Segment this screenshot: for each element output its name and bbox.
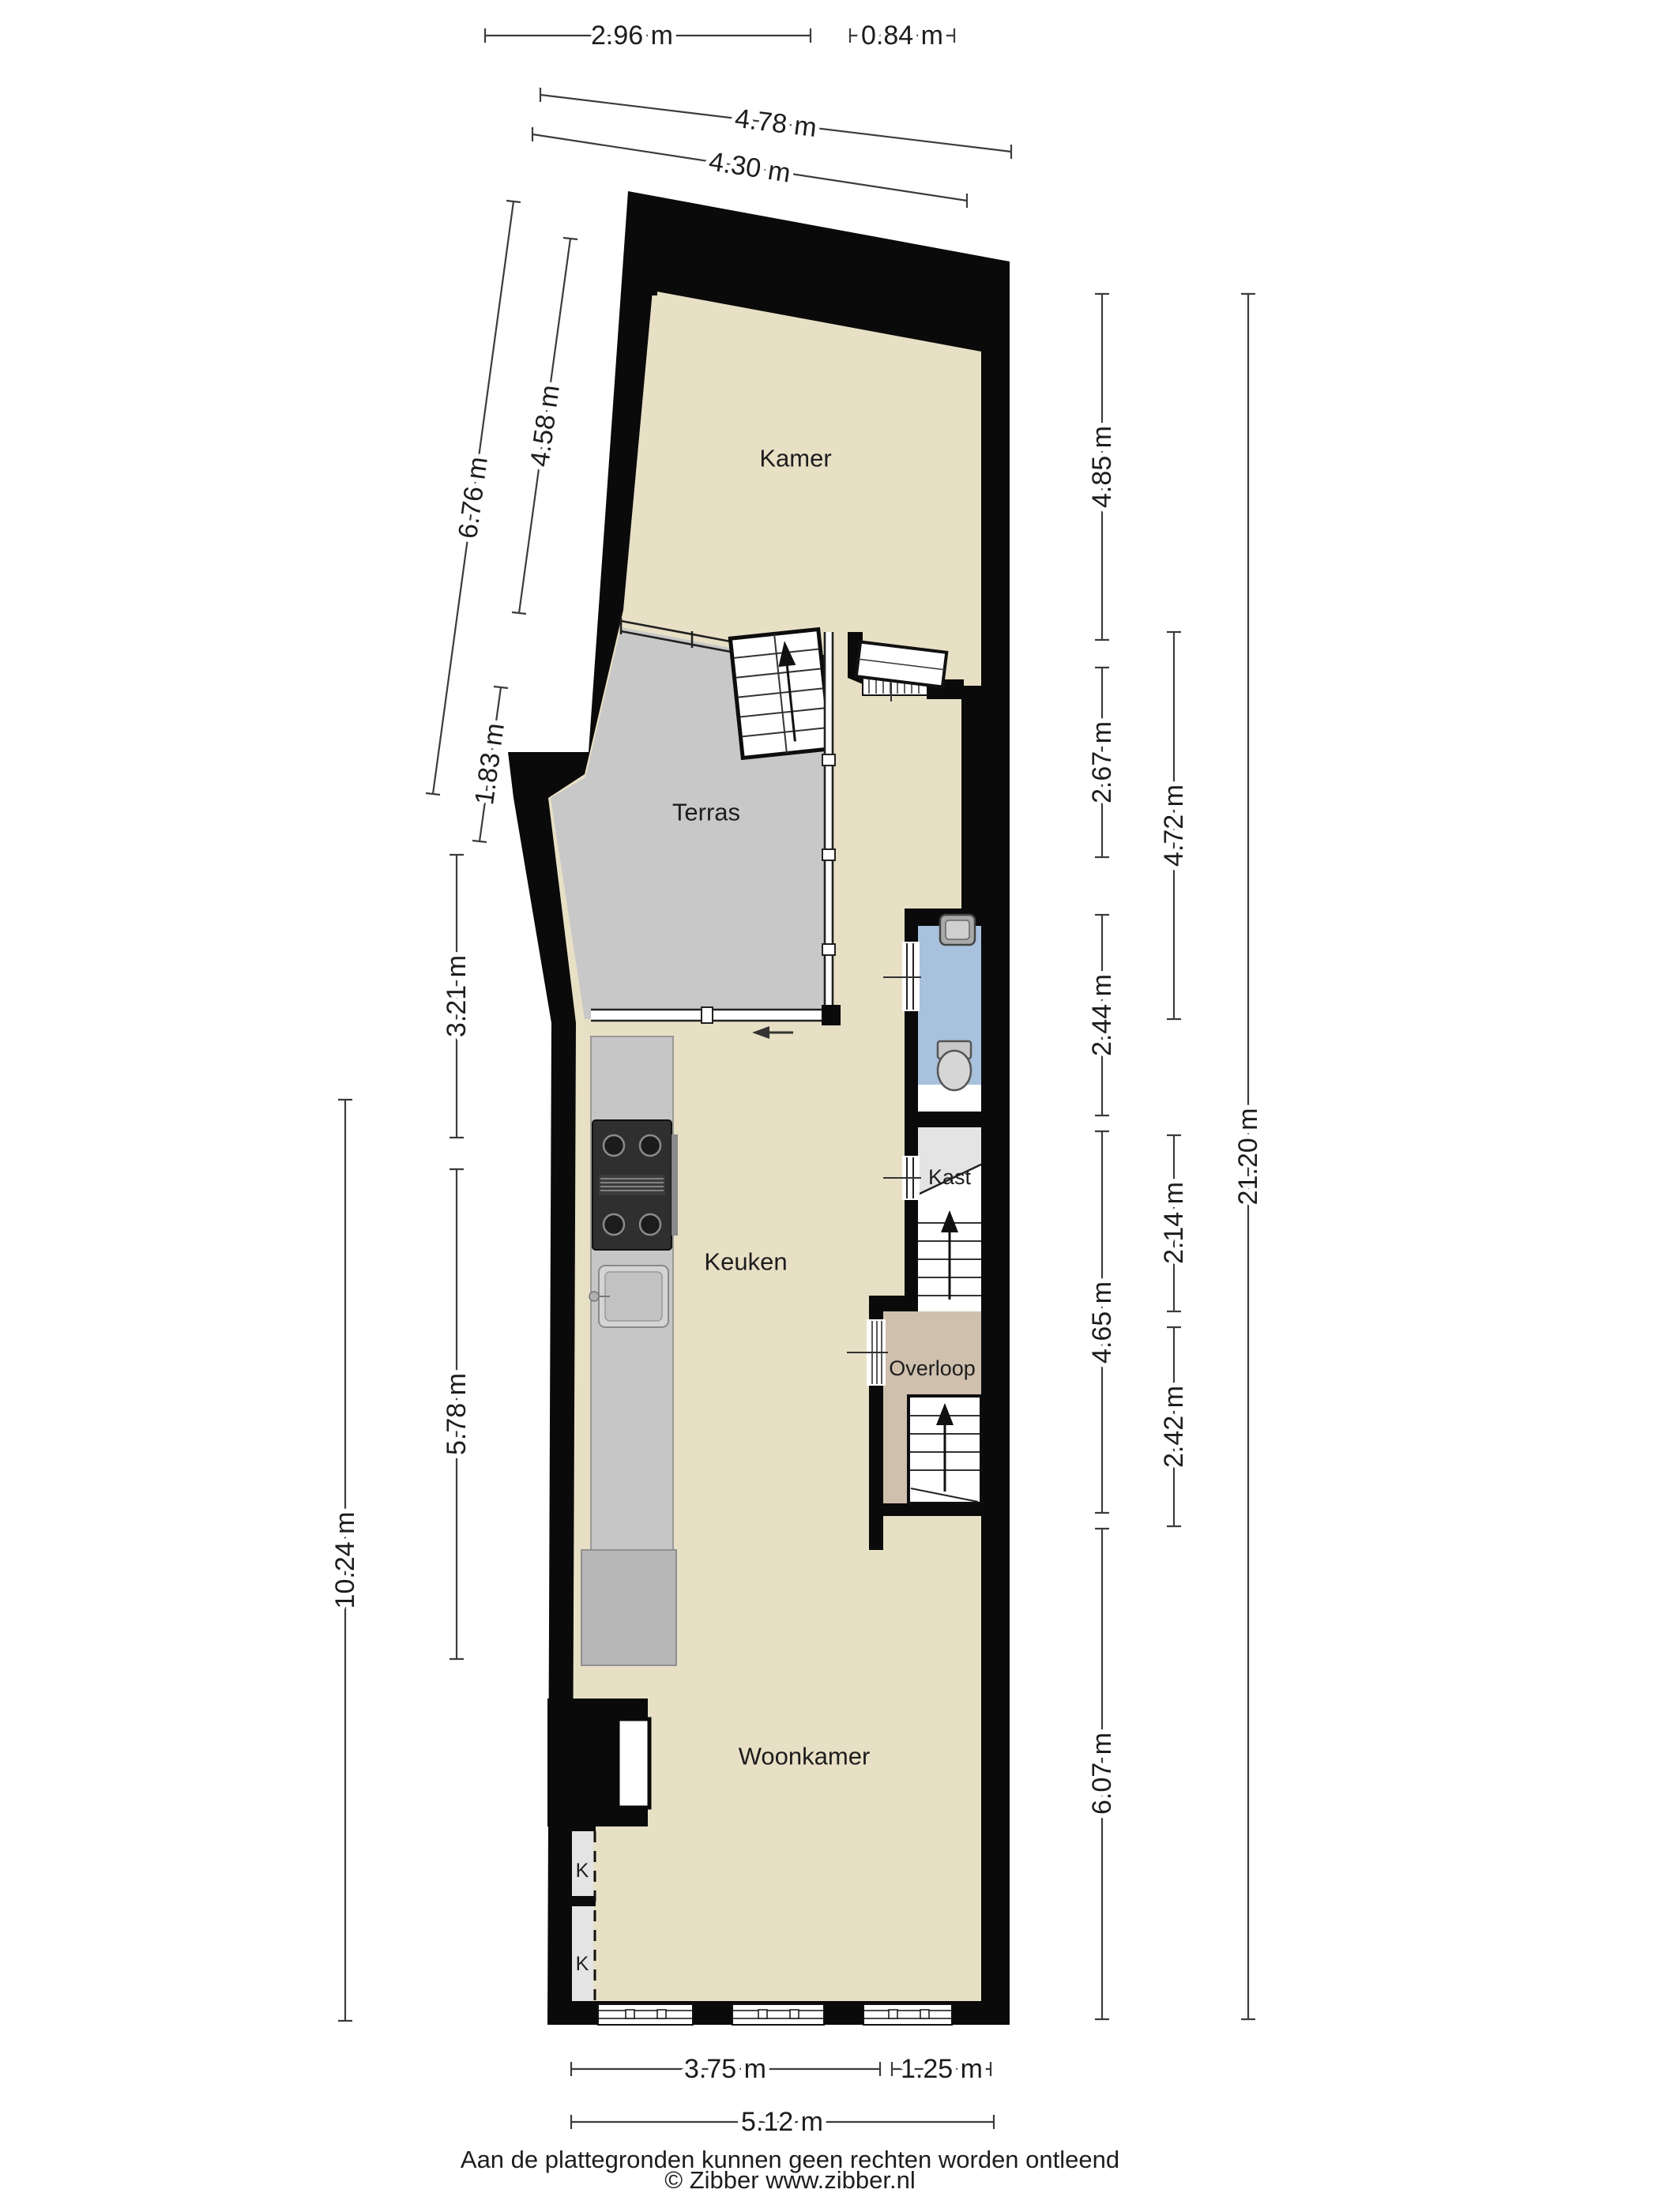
dim-right-2120: 21.20 m (1233, 294, 1263, 2019)
closet-k1-label: K (576, 1860, 589, 1882)
dim-right-485: 4.85 m (1087, 294, 1117, 640)
svg-text:4.78 m: 4.78 m (733, 103, 818, 143)
dim-left-321: 3.21 m (442, 855, 472, 1138)
svg-text:4.72 m: 4.72 m (1159, 784, 1189, 867)
room-label-woonkamer: Woonkamer (739, 1743, 871, 1770)
floorplan-canvas: K K Kamer Terras Keuken Kast Overl (0, 0, 1659, 2212)
dim-bottom-125: 1.25 m (892, 2054, 991, 2084)
wall-step-notch (624, 280, 657, 295)
svg-text:5.78 m: 5.78 m (442, 1373, 472, 1455)
svg-text:4.58 m: 4.58 m (525, 383, 566, 468)
svg-text:3.21 m: 3.21 m (442, 955, 472, 1037)
overloop-bottom-wall (869, 1503, 981, 1516)
svg-text:0.84 m: 0.84 m (861, 21, 943, 51)
stove (592, 1120, 678, 1250)
window-2 (732, 2004, 824, 2025)
dim-left-183: 1.83 m (469, 687, 510, 842)
toilet (938, 1041, 971, 1090)
chimney (547, 1698, 649, 1826)
room-label-keuken: Keuken (704, 1248, 787, 1276)
overloop-top-wall (869, 1296, 918, 1311)
closet-top-wall (567, 1822, 596, 1831)
dim-right-244: 2.44 m (1087, 915, 1117, 1115)
dim-top-296: 2.96 m (485, 21, 811, 51)
svg-text:4.30 m: 4.30 m (707, 146, 793, 188)
svg-text:2.42 m: 2.42 m (1159, 1386, 1189, 1468)
terras-glass-wall-right (822, 632, 835, 1019)
kitchen-sink (589, 1266, 668, 1327)
room-label-kamer: Kamer (759, 445, 831, 472)
footer-copyright: © Zibber www.zibber.nl (664, 2166, 915, 2194)
floorplan-page: K K Kamer Terras Keuken Kast Overl (0, 0, 1659, 2212)
svg-text:6.07 m: 6.07 m (1087, 1732, 1117, 1815)
room-label-kast: Kast (928, 1165, 972, 1189)
stairs-upper (918, 1203, 981, 1311)
dim-right-472: 4.72 m (1159, 632, 1189, 1019)
closet-k2-label: K (576, 1953, 589, 1975)
dim-left-458: 4.58 m (512, 238, 577, 614)
dim-top-084: 0.84 m (850, 21, 954, 51)
svg-text:21.20 m: 21.20 m (1233, 1108, 1263, 1206)
svg-text:10.24 m: 10.24 m (330, 1512, 360, 1609)
kitchen-counter (581, 1036, 678, 1665)
svg-text:4.65 m: 4.65 m (1087, 1281, 1117, 1364)
svg-text:6.76 m: 6.76 m (453, 455, 494, 540)
svg-text:5.12 m: 5.12 m (741, 2107, 823, 2137)
terras-stairs (730, 630, 830, 758)
stairs-lower (908, 1396, 981, 1503)
svg-text:4.85 m: 4.85 m (1087, 426, 1117, 508)
svg-text:2.44 m: 2.44 m (1087, 974, 1117, 1056)
window-slit-kamer (585, 535, 600, 574)
dim-top-478: 4.78 m (540, 88, 1011, 159)
dim-left-1024: 10.24 m (330, 1100, 360, 2021)
svg-text:2.67 m: 2.67 m (1087, 721, 1117, 803)
sink (940, 915, 975, 945)
dim-right-242: 2.42 m (1159, 1327, 1189, 1526)
bottom-windows (598, 2004, 952, 2025)
dim-right-465: 4.65 m (1087, 1131, 1117, 1513)
svg-text:3.75 m: 3.75 m (684, 2054, 766, 2084)
dim-bottom-375: 3.75 m (571, 2054, 880, 2084)
room-label-terras: Terras (672, 799, 740, 826)
svg-text:1.25 m: 1.25 m (901, 2054, 983, 2084)
svg-text:2.14 m: 2.14 m (1159, 1182, 1189, 1264)
window-3 (863, 2004, 952, 2025)
dim-right-267: 2.67 m (1087, 668, 1117, 857)
svg-text:2.96 m: 2.96 m (591, 21, 673, 51)
dim-right-214: 2.14 m (1159, 1135, 1189, 1311)
room-label-overloop: Overloop (889, 1356, 976, 1380)
dim-bottom-512: 5.12 m (571, 2107, 994, 2137)
window-1 (598, 2004, 693, 2025)
svg-text:1.83 m: 1.83 m (469, 721, 510, 807)
wall-corridor-jog (961, 686, 985, 916)
dim-left-676: 6.76 m (426, 201, 521, 795)
dim-left-578: 5.78 m (442, 1169, 472, 1659)
closet-divider-wall (567, 1896, 596, 1906)
dim-right-607: 6.07 m (1087, 1529, 1117, 2019)
kitchen-cabinet (581, 1550, 676, 1665)
kast-divider-wall (905, 1127, 918, 1311)
